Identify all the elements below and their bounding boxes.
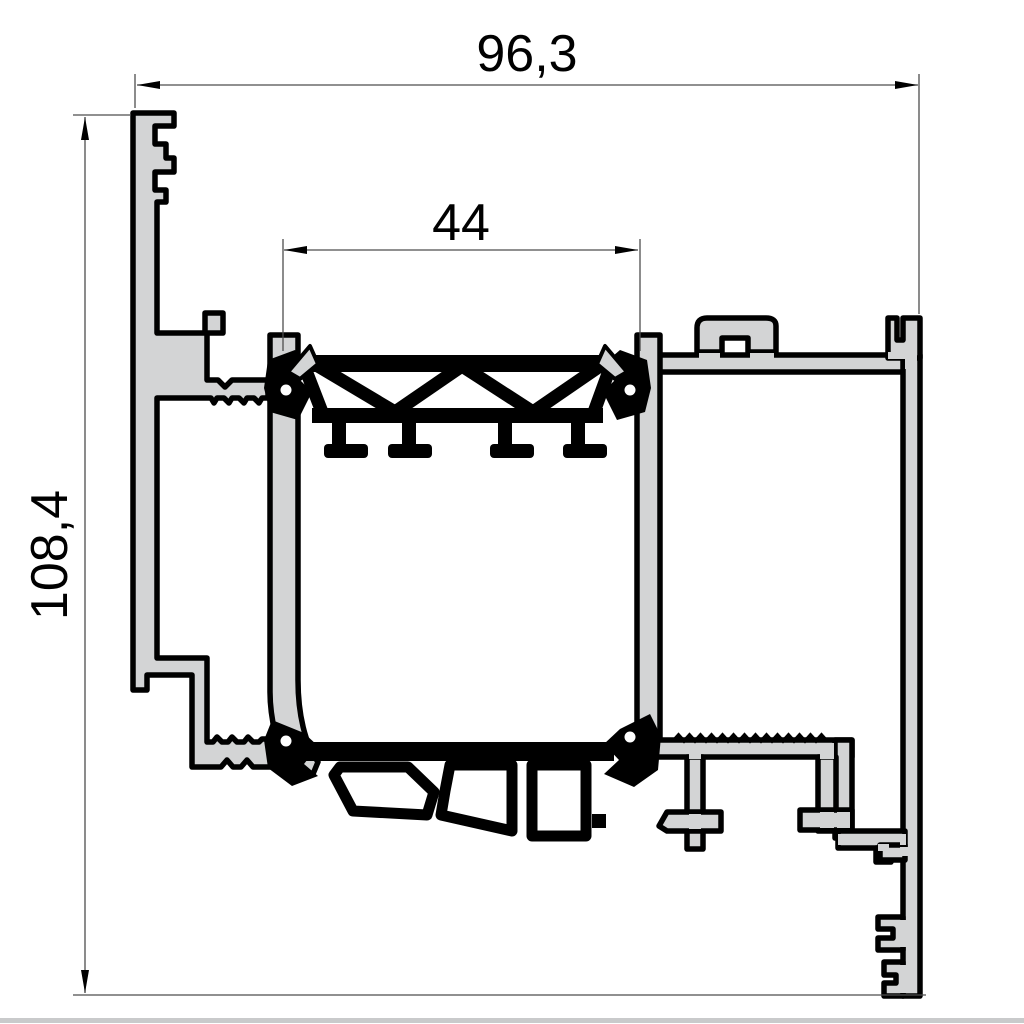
- drawing-page: 96,3 44 108,4: [0, 0, 1024, 1024]
- gasket-hole-top-right: [625, 385, 636, 396]
- dimension-overall-width: 96,3: [135, 25, 919, 314]
- sash-right-bar: [903, 355, 920, 996]
- truss-bottom-chord: [312, 408, 603, 423]
- left-frame-profile: [133, 113, 318, 774]
- gasket-hole-bottom-left: [281, 736, 292, 747]
- right-sash-profile: [637, 318, 920, 996]
- bottom-thermal-break: [264, 714, 661, 836]
- dimension-glazing-width: 44: [283, 194, 640, 351]
- gasket-clip-bottom-left: [264, 720, 318, 786]
- break-chamber-right: [532, 765, 586, 836]
- bottom-break-bar: [298, 742, 614, 761]
- gasket-hole-bottom-right: [625, 732, 636, 743]
- dim-arrow-left: [137, 81, 160, 89]
- dim-label-overall-width: 96,3: [476, 25, 577, 83]
- dim-arrow-top: [81, 117, 89, 140]
- screw-boss-left-stem: [687, 757, 703, 849]
- sash-mushroom-lug: [697, 318, 776, 352]
- truss-feet: [324, 421, 607, 458]
- gasket-clip-bottom-right: [604, 714, 661, 787]
- dim-arrow-left: [284, 246, 307, 254]
- sash-top-bar: [647, 355, 918, 372]
- page-bottom-border: [0, 1018, 1024, 1023]
- top-thermal-break: [264, 346, 651, 458]
- gasket-hole-top-left: [281, 385, 292, 396]
- break-chamber-nub: [592, 814, 606, 828]
- break-chamber-left: [334, 767, 434, 815]
- truss-diagonals: [305, 366, 610, 412]
- dim-label-glazing-width: 44: [432, 194, 490, 252]
- left-frame-body: [133, 113, 273, 767]
- dim-arrow-bottom: [81, 970, 89, 993]
- dim-arrow-right: [615, 246, 638, 254]
- break-chamber-middle: [441, 765, 512, 831]
- dim-label-overall-height: 108,4: [21, 490, 79, 620]
- profile-section-drawing: 96,3 44 108,4: [0, 0, 1024, 1024]
- sash-bottom-hook-upper: [878, 917, 903, 950]
- dim-arrow-right: [895, 81, 918, 89]
- seam-patches: [640, 352, 917, 993]
